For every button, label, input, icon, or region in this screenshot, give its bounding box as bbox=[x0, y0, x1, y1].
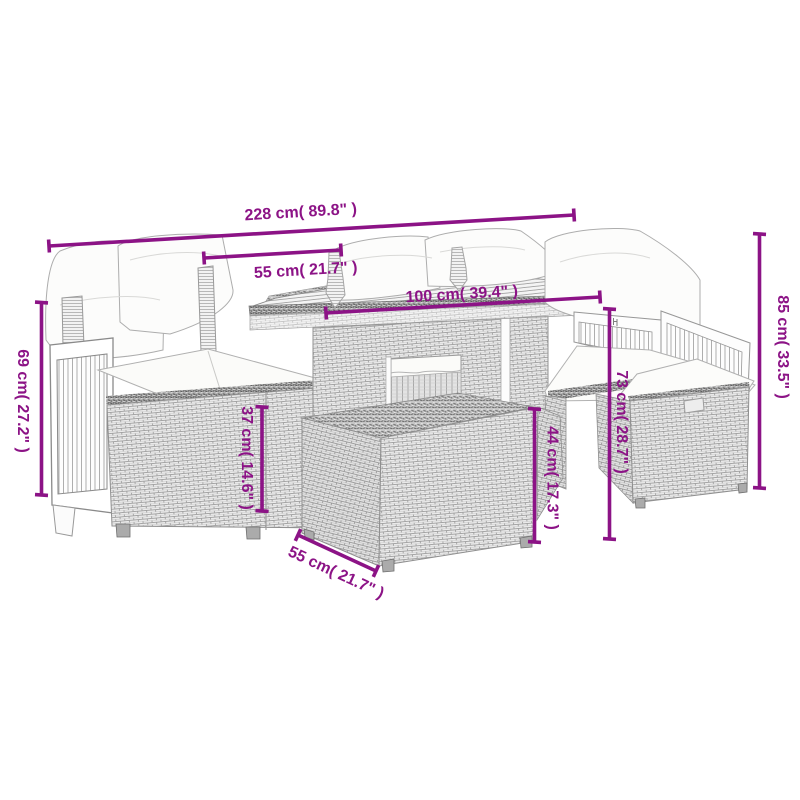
svg-text:85 cm( 33.5" ): 85 cm( 33.5" ) bbox=[774, 295, 791, 399]
svg-text:69 cm( 27.2" ): 69 cm( 27.2" ) bbox=[14, 349, 31, 453]
svg-text:73 cm( 28.7" ): 73 cm( 28.7" ) bbox=[613, 370, 630, 474]
svg-text:44 cm( 17.3" ): 44 cm( 17.3" ) bbox=[544, 426, 561, 530]
svg-text:37 cm( 14.6" ): 37 cm( 14.6" ) bbox=[238, 406, 255, 510]
